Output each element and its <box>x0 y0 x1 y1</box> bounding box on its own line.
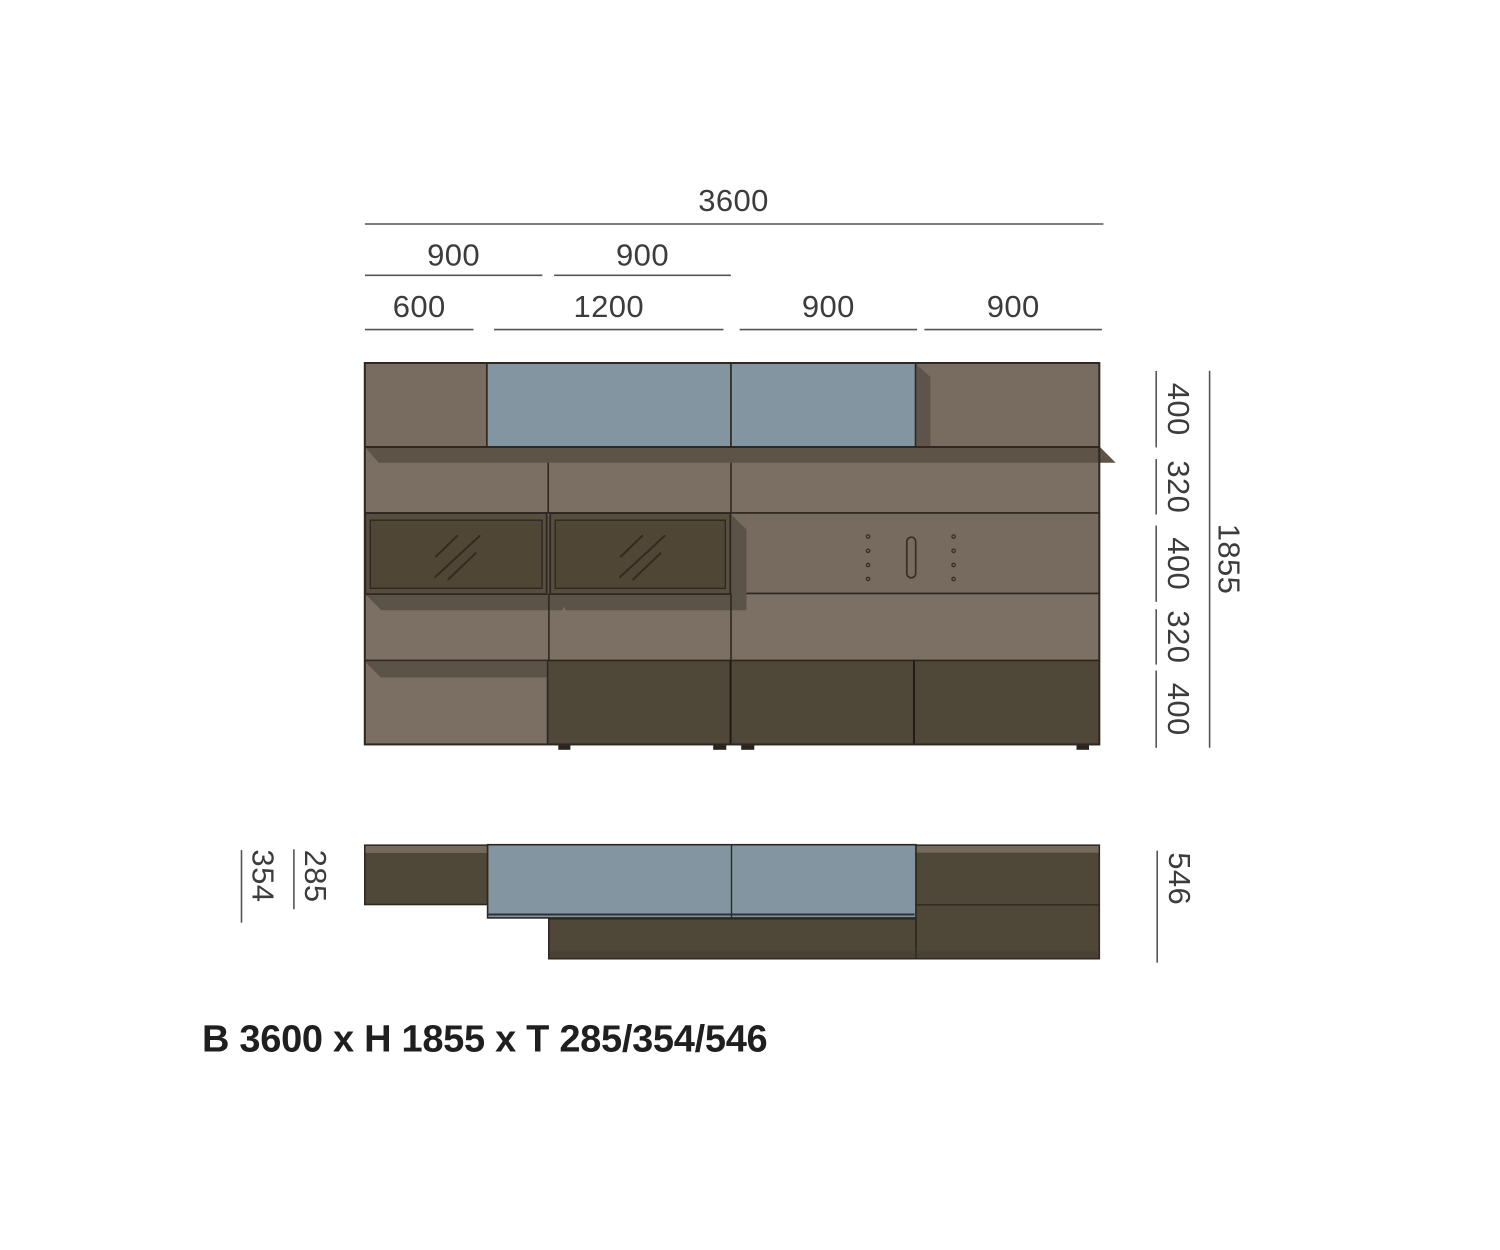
svg-text:900: 900 <box>427 238 480 273</box>
svg-text:1855: 1855 <box>1212 524 1247 595</box>
svg-text:600: 600 <box>393 289 446 324</box>
svg-text:400: 400 <box>1161 683 1196 736</box>
svg-text:1200: 1200 <box>574 289 645 324</box>
svg-text:B 3600 x H 1855 x T 285/354/54: B 3600 x H 1855 x T 285/354/546 <box>202 1019 767 1061</box>
svg-text:400: 400 <box>1161 383 1196 436</box>
svg-text:285: 285 <box>298 850 333 903</box>
svg-text:320: 320 <box>1161 610 1196 663</box>
svg-text:354: 354 <box>246 849 281 902</box>
svg-text:400: 400 <box>1161 537 1196 590</box>
svg-text:320: 320 <box>1161 460 1196 513</box>
svg-text:900: 900 <box>987 289 1040 324</box>
svg-text:900: 900 <box>616 238 669 273</box>
svg-text:900: 900 <box>802 289 855 324</box>
svg-text:546: 546 <box>1162 852 1197 905</box>
svg-text:3600: 3600 <box>698 183 769 218</box>
